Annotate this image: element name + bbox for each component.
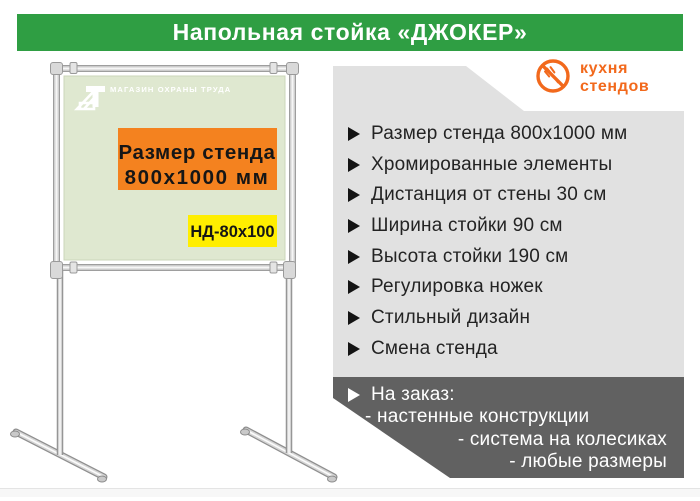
- feature-item: Стильный дизайн: [348, 306, 684, 330]
- custom-order-item: - любые размеры: [509, 451, 667, 473]
- size-line2: 800х1000 мм: [125, 166, 270, 189]
- features-panel: Размер стенда 800х1000 мм Хромированные …: [333, 66, 684, 377]
- size-line1: Размер стенда: [119, 141, 276, 164]
- bullet-triangle-icon: [348, 311, 360, 325]
- bullet-triangle-icon: [348, 280, 360, 294]
- no-fork-icon: [534, 57, 572, 100]
- feature-item: Ширина стойки 90 см: [348, 214, 684, 238]
- custom-order-item: - система на колесиках: [458, 429, 667, 451]
- feature-item: Размер стенда 800х1000 мм: [348, 122, 684, 146]
- model-tag-text: НД-80х100: [190, 223, 274, 241]
- bullet-triangle-icon: [348, 158, 360, 172]
- bullet-triangle-icon: [348, 250, 360, 264]
- brand-name: кухня стендов: [580, 60, 700, 96]
- bullet-triangle-icon: [348, 219, 360, 233]
- floor-stand-illustration: МАГАЗИН ОХРАНЫ ТРУДА Размер стенда 800х1…: [0, 50, 350, 496]
- shop-watermark-text: МАГАЗИН ОХРАНЫ ТРУДА: [110, 85, 231, 94]
- feature-item: Дистанция от стены 30 см: [348, 183, 684, 207]
- bullet-triangle-icon: [348, 388, 360, 402]
- custom-order-title: На заказ:: [348, 384, 455, 406]
- title-banner: Напольная стойка «ДЖОКЕР»: [17, 14, 683, 51]
- feature-item: Смена стенда: [348, 337, 684, 361]
- feature-item: Регулировка ножек: [348, 275, 684, 299]
- bullet-triangle-icon: [348, 127, 360, 141]
- feature-item: Высота стойки 190 см: [348, 245, 684, 269]
- custom-order-item: - настенные конструкции: [365, 406, 589, 428]
- brand-logo: кухня стендов: [534, 58, 700, 98]
- feature-item: Хромированные элементы: [348, 153, 684, 177]
- bullet-triangle-icon: [348, 342, 360, 356]
- bullet-triangle-icon: [348, 188, 360, 202]
- custom-order-block: На заказ: - настенные конструкции - сист…: [333, 377, 684, 478]
- page-title: Напольная стойка «ДЖОКЕР»: [173, 19, 528, 46]
